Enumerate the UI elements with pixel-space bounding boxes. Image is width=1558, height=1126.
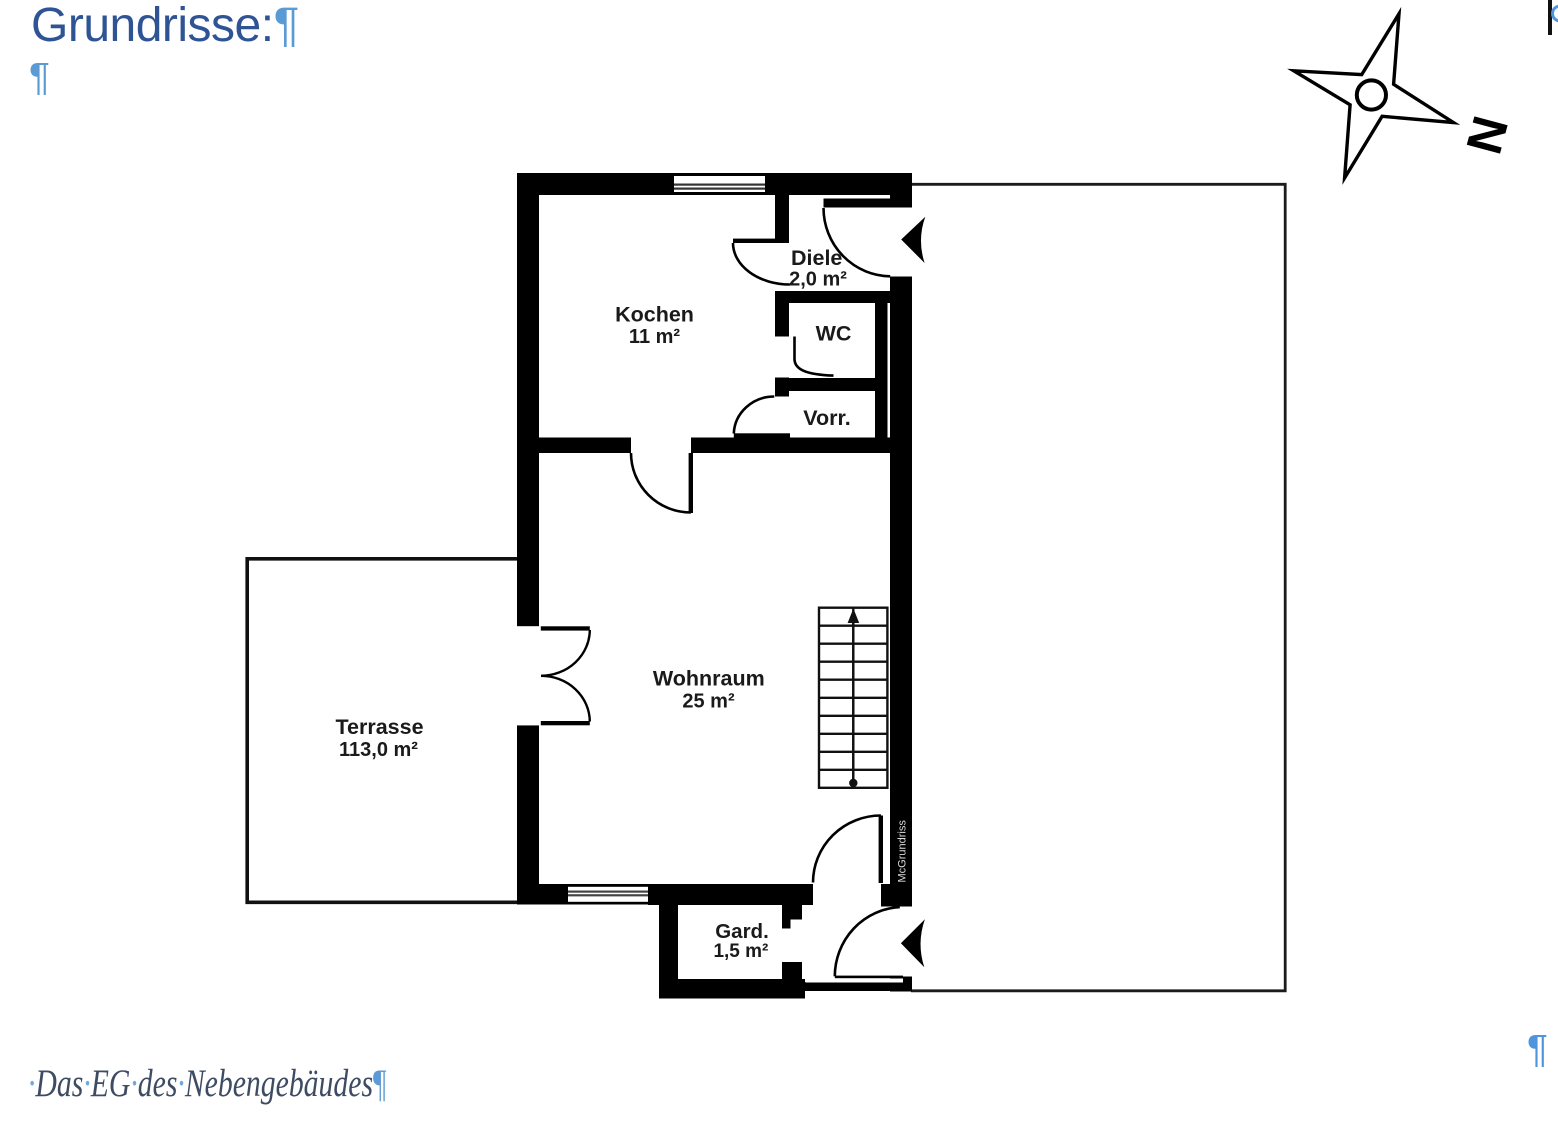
svg-text:Diele: Diele [791,246,842,270]
svg-text:113,0 m²: 113,0 m² [339,739,418,761]
svg-text:Wohnraum: Wohnraum [653,667,765,691]
svg-text:1,5 m²: 1,5 m² [713,941,768,962]
svg-text:WC: WC [816,322,852,346]
svg-text:Terrasse: Terrasse [335,715,423,739]
svg-text:25 m²: 25 m² [682,691,735,713]
svg-text:Kochen: Kochen [615,303,694,327]
svg-text:Gard.: Gard. [715,920,769,943]
svg-text:Vorr.: Vorr. [803,406,850,430]
svg-text:N: N [1455,110,1518,159]
svg-text:McGrundriss: McGrundriss [897,820,909,883]
svg-text:11 m²: 11 m² [629,326,680,348]
svg-text:2,0 m²: 2,0 m² [789,269,847,291]
